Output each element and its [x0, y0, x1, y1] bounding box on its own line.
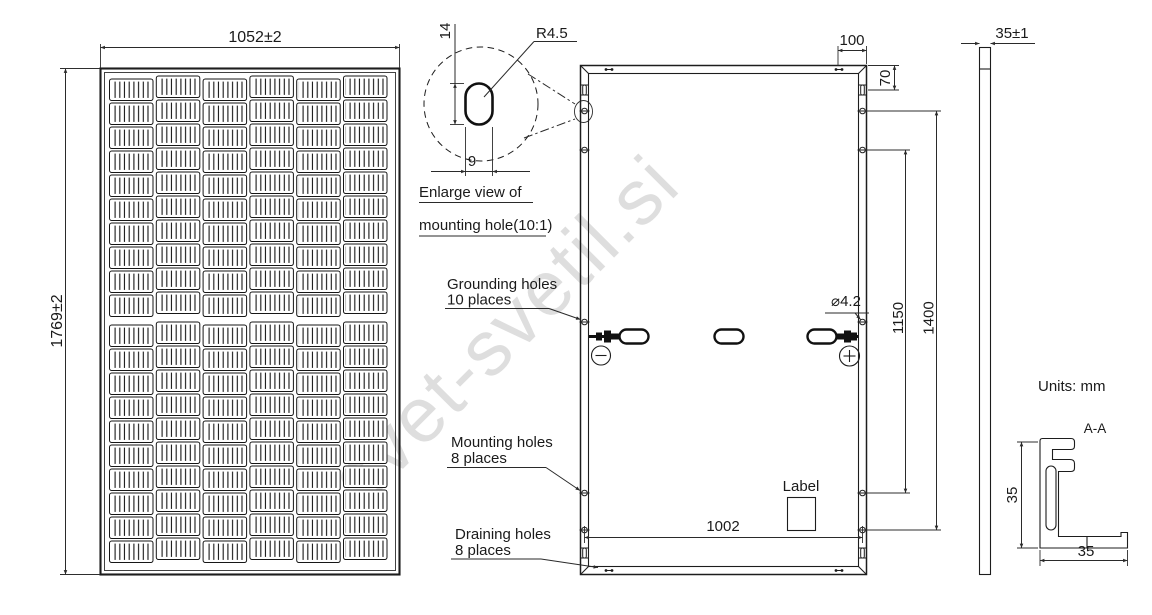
cell-busbars	[159, 103, 198, 119]
cell-busbars	[252, 79, 291, 95]
cell-busbars	[159, 79, 198, 95]
cell-busbars	[112, 82, 151, 98]
cell-busbars	[252, 175, 291, 191]
cell-busbars	[112, 472, 151, 488]
cell-busbars	[205, 298, 244, 314]
cell-busbars	[346, 373, 385, 389]
front-height-dim-text: 1769±2	[49, 294, 66, 347]
draining-hole	[835, 569, 838, 572]
cell-busbars	[205, 544, 244, 560]
section-width-dimension: 35	[1040, 543, 1128, 566]
back-frame-outer	[581, 66, 867, 575]
cell-busbars	[346, 445, 385, 461]
draining-hole	[841, 569, 844, 572]
cell-busbars	[205, 352, 244, 368]
cell-busbars	[252, 517, 291, 533]
cell-busbars	[159, 223, 198, 239]
cell-busbars	[299, 376, 338, 392]
cell-busbars	[205, 130, 244, 146]
cell-busbars	[346, 541, 385, 557]
cell-busbars	[159, 373, 198, 389]
cell-busbars	[205, 226, 244, 242]
cell-busbars	[252, 247, 291, 263]
cell-busbars	[299, 154, 338, 170]
cell-busbars	[112, 202, 151, 218]
cell-busbars	[112, 448, 151, 464]
detail-connector-line-bottom	[524, 119, 575, 138]
cell-busbars	[159, 175, 198, 191]
cell-busbars	[159, 127, 198, 143]
cell-busbars	[112, 154, 151, 170]
draining-hole	[605, 569, 608, 572]
cell-busbars	[159, 325, 198, 341]
cell-busbars	[346, 469, 385, 485]
draining-hole	[841, 68, 844, 71]
cell-busbars	[346, 175, 385, 191]
grounding-hole-dia-callout: ⌀4.2	[825, 293, 869, 320]
cell-busbars	[252, 541, 291, 557]
label-text: Label	[783, 478, 820, 495]
cell-busbars	[112, 400, 151, 416]
cell-busbars	[346, 397, 385, 413]
cell-busbars	[346, 151, 385, 167]
draining-hole	[835, 68, 838, 71]
back-inner-span-dimension: 1150	[866, 150, 910, 493]
grounding-hole-dia-text: ⌀4.2	[831, 293, 861, 310]
cell-busbars	[346, 79, 385, 95]
frame-profile	[1040, 439, 1128, 549]
draining-hole	[611, 68, 614, 71]
cell-busbars	[112, 496, 151, 512]
cell-busbars	[159, 295, 198, 311]
grounding-holes-label-line2: 10 places	[447, 292, 511, 309]
mounting-holes-label-line2: 8 places	[451, 450, 507, 467]
back-outer-span-dim-text: 1400	[921, 301, 938, 334]
cell-busbars	[299, 328, 338, 344]
detail-caption-line2: mounting hole(10:1)	[419, 217, 552, 234]
units-label: Units: mm	[1038, 378, 1106, 395]
cell-busbars	[299, 106, 338, 122]
cell-busbars	[205, 520, 244, 536]
cell-busbars	[299, 424, 338, 440]
radius-label: R4.5	[536, 25, 568, 42]
cell-busbars	[346, 421, 385, 437]
cell-busbars	[299, 178, 338, 194]
cell-busbars	[299, 544, 338, 560]
cell-busbars	[252, 127, 291, 143]
side-thickness-dimension: 35±1	[961, 25, 1035, 44]
cell-busbars	[205, 400, 244, 416]
cell-busbars	[252, 373, 291, 389]
cell-busbars	[346, 199, 385, 215]
draining-holes-label-line1: Draining holes	[455, 526, 551, 543]
cell-busbars	[252, 295, 291, 311]
cell-busbars	[252, 271, 291, 287]
detail-connector-line-top	[528, 74, 575, 104]
cell-busbars	[159, 199, 198, 215]
positive-terminal-icon	[840, 346, 860, 366]
cell-busbars	[205, 154, 244, 170]
cell-busbars	[299, 472, 338, 488]
frame-slot	[861, 548, 865, 558]
cell-busbars	[205, 82, 244, 98]
cell-busbars	[346, 349, 385, 365]
cell-busbars	[299, 250, 338, 266]
back-top-offset-dim-text: 100	[839, 32, 864, 49]
section-width-dim-text: 35	[1078, 543, 1095, 560]
frame-profile-cavity	[1046, 466, 1056, 530]
draining-hole	[611, 569, 614, 572]
junction-box-middle	[715, 330, 744, 344]
detail-height-dim-text: 14	[437, 23, 454, 40]
grounding-holes-label-line1: Grounding holes	[447, 276, 557, 293]
cell-busbars	[299, 226, 338, 242]
label-box	[788, 498, 816, 531]
cell-busbars	[205, 328, 244, 344]
cell-busbars	[346, 271, 385, 287]
junction-box-left	[620, 330, 649, 344]
detail-width-dimension: 9	[431, 127, 530, 176]
side-thickness-dim-text: 35±1	[995, 25, 1028, 42]
section-height-dim-text: 35	[1004, 487, 1021, 504]
cell-busbars	[252, 421, 291, 437]
back-inner-span-dim-text: 1150	[890, 302, 907, 334]
cell-busbars	[205, 202, 244, 218]
detail-height-dimension: 14	[437, 23, 464, 125]
side-view: 35±1	[961, 25, 1035, 575]
radius-callout: R4.5	[484, 25, 577, 97]
cell-busbars	[252, 397, 291, 413]
cell-busbars	[112, 520, 151, 536]
cell-busbars	[112, 178, 151, 194]
draining-holes-label-line2: 8 places	[455, 542, 511, 559]
cell-busbars	[112, 352, 151, 368]
positive-connector	[836, 331, 858, 343]
cell-busbars	[112, 250, 151, 266]
mounting-hole-shape	[466, 84, 493, 125]
mounting-holes-label-line1: Mounting holes	[451, 434, 553, 451]
front-width-dimension: 1052±2	[101, 29, 400, 68]
cell-busbars	[346, 103, 385, 119]
back-top-offset-dimension: 100	[838, 32, 867, 66]
cell-busbars	[205, 250, 244, 266]
section-view: Units: mm A-A 35 35	[1004, 378, 1128, 566]
front-view: 1052±2 1769±2	[49, 29, 400, 575]
cell-busbars	[299, 520, 338, 536]
cell-busbars	[205, 472, 244, 488]
detail-caption-line1: Enlarge view of	[419, 184, 522, 201]
cell-busbars	[112, 376, 151, 392]
cell-busbars	[159, 469, 198, 485]
cell-busbars	[112, 424, 151, 440]
cell-busbars	[159, 151, 198, 167]
back-bottom-span-dim-text: 1002	[706, 518, 739, 535]
back-bottom-span-dimension: 1002	[585, 518, 863, 543]
frame-slot	[583, 548, 587, 558]
solar-panel-drawing: svet-svetil.si 1052±2 1769±2 R4.5	[0, 0, 1152, 615]
cell-busbars	[159, 541, 198, 557]
cell-busbars	[205, 274, 244, 290]
cell-busbars	[299, 496, 338, 512]
cell-busbars	[299, 448, 338, 464]
cell-busbars	[252, 223, 291, 239]
section-height-dimension: 35	[1004, 442, 1038, 548]
side-profile-bar	[980, 48, 991, 575]
back-corner-offset-dim-text: 70	[877, 70, 894, 87]
front-height-dimension: 1769±2	[49, 69, 100, 575]
front-width-dim-text: 1052±2	[228, 29, 281, 46]
negative-connector	[589, 331, 619, 343]
cell-busbars	[346, 127, 385, 143]
junction-box-right	[808, 330, 837, 344]
cell-busbars	[252, 445, 291, 461]
cell-busbars	[159, 445, 198, 461]
cell-busbars	[159, 247, 198, 263]
cell-busbars	[159, 493, 198, 509]
section-title: A-A	[1084, 421, 1107, 436]
cell-busbars	[299, 298, 338, 314]
cell-busbars	[205, 424, 244, 440]
cell-busbars	[112, 106, 151, 122]
cell-busbars	[299, 202, 338, 218]
cell-busbars	[252, 103, 291, 119]
cell-busbars	[346, 295, 385, 311]
cell-busbars	[299, 82, 338, 98]
cell-busbars	[112, 544, 151, 560]
cell-busbars	[252, 493, 291, 509]
cell-busbars	[346, 223, 385, 239]
back-view-holes	[580, 68, 868, 572]
cell-busbars	[112, 298, 151, 314]
cell-busbars	[299, 130, 338, 146]
cell-busbars	[299, 274, 338, 290]
cell-busbars	[112, 328, 151, 344]
cell-busbars	[112, 130, 151, 146]
cell-busbars	[205, 376, 244, 392]
cell-busbars	[346, 493, 385, 509]
cell-busbars	[252, 199, 291, 215]
cell-busbars	[205, 106, 244, 122]
cell-busbars	[159, 421, 198, 437]
cell-busbars	[252, 349, 291, 365]
frame-slot	[583, 85, 587, 95]
cell-busbars	[346, 247, 385, 263]
cell-busbars	[159, 271, 198, 287]
cell-busbars	[159, 397, 198, 413]
front-view-cells	[110, 76, 388, 563]
label-marker: Label	[783, 478, 820, 531]
cell-busbars	[346, 517, 385, 533]
cell-busbars	[112, 274, 151, 290]
cell-busbars	[299, 400, 338, 416]
draining-hole	[605, 68, 608, 71]
draining-holes-callout: Draining holes 8 places	[451, 526, 598, 568]
technical-drawing: svet-svetil.si 1052±2 1769±2 R4.5	[0, 0, 1152, 615]
cell-busbars	[159, 349, 198, 365]
mounting-holes-callout: Mounting holes 8 places	[447, 434, 580, 491]
cell-busbars	[205, 496, 244, 512]
negative-terminal-icon	[592, 346, 611, 365]
cell-busbars	[252, 469, 291, 485]
frame-slot	[861, 85, 865, 95]
cell-busbars	[252, 325, 291, 341]
cell-busbars	[159, 517, 198, 533]
detail-width-dim-text: 9	[468, 153, 476, 170]
cell-busbars	[112, 226, 151, 242]
cell-busbars	[252, 151, 291, 167]
cell-busbars	[299, 352, 338, 368]
back-corner-offset-dimension: 70	[868, 66, 899, 91]
cell-busbars	[346, 325, 385, 341]
cell-busbars	[205, 178, 244, 194]
cell-busbars	[205, 448, 244, 464]
detail-caption: Enlarge view of mounting hole(10:1)	[419, 184, 552, 236]
